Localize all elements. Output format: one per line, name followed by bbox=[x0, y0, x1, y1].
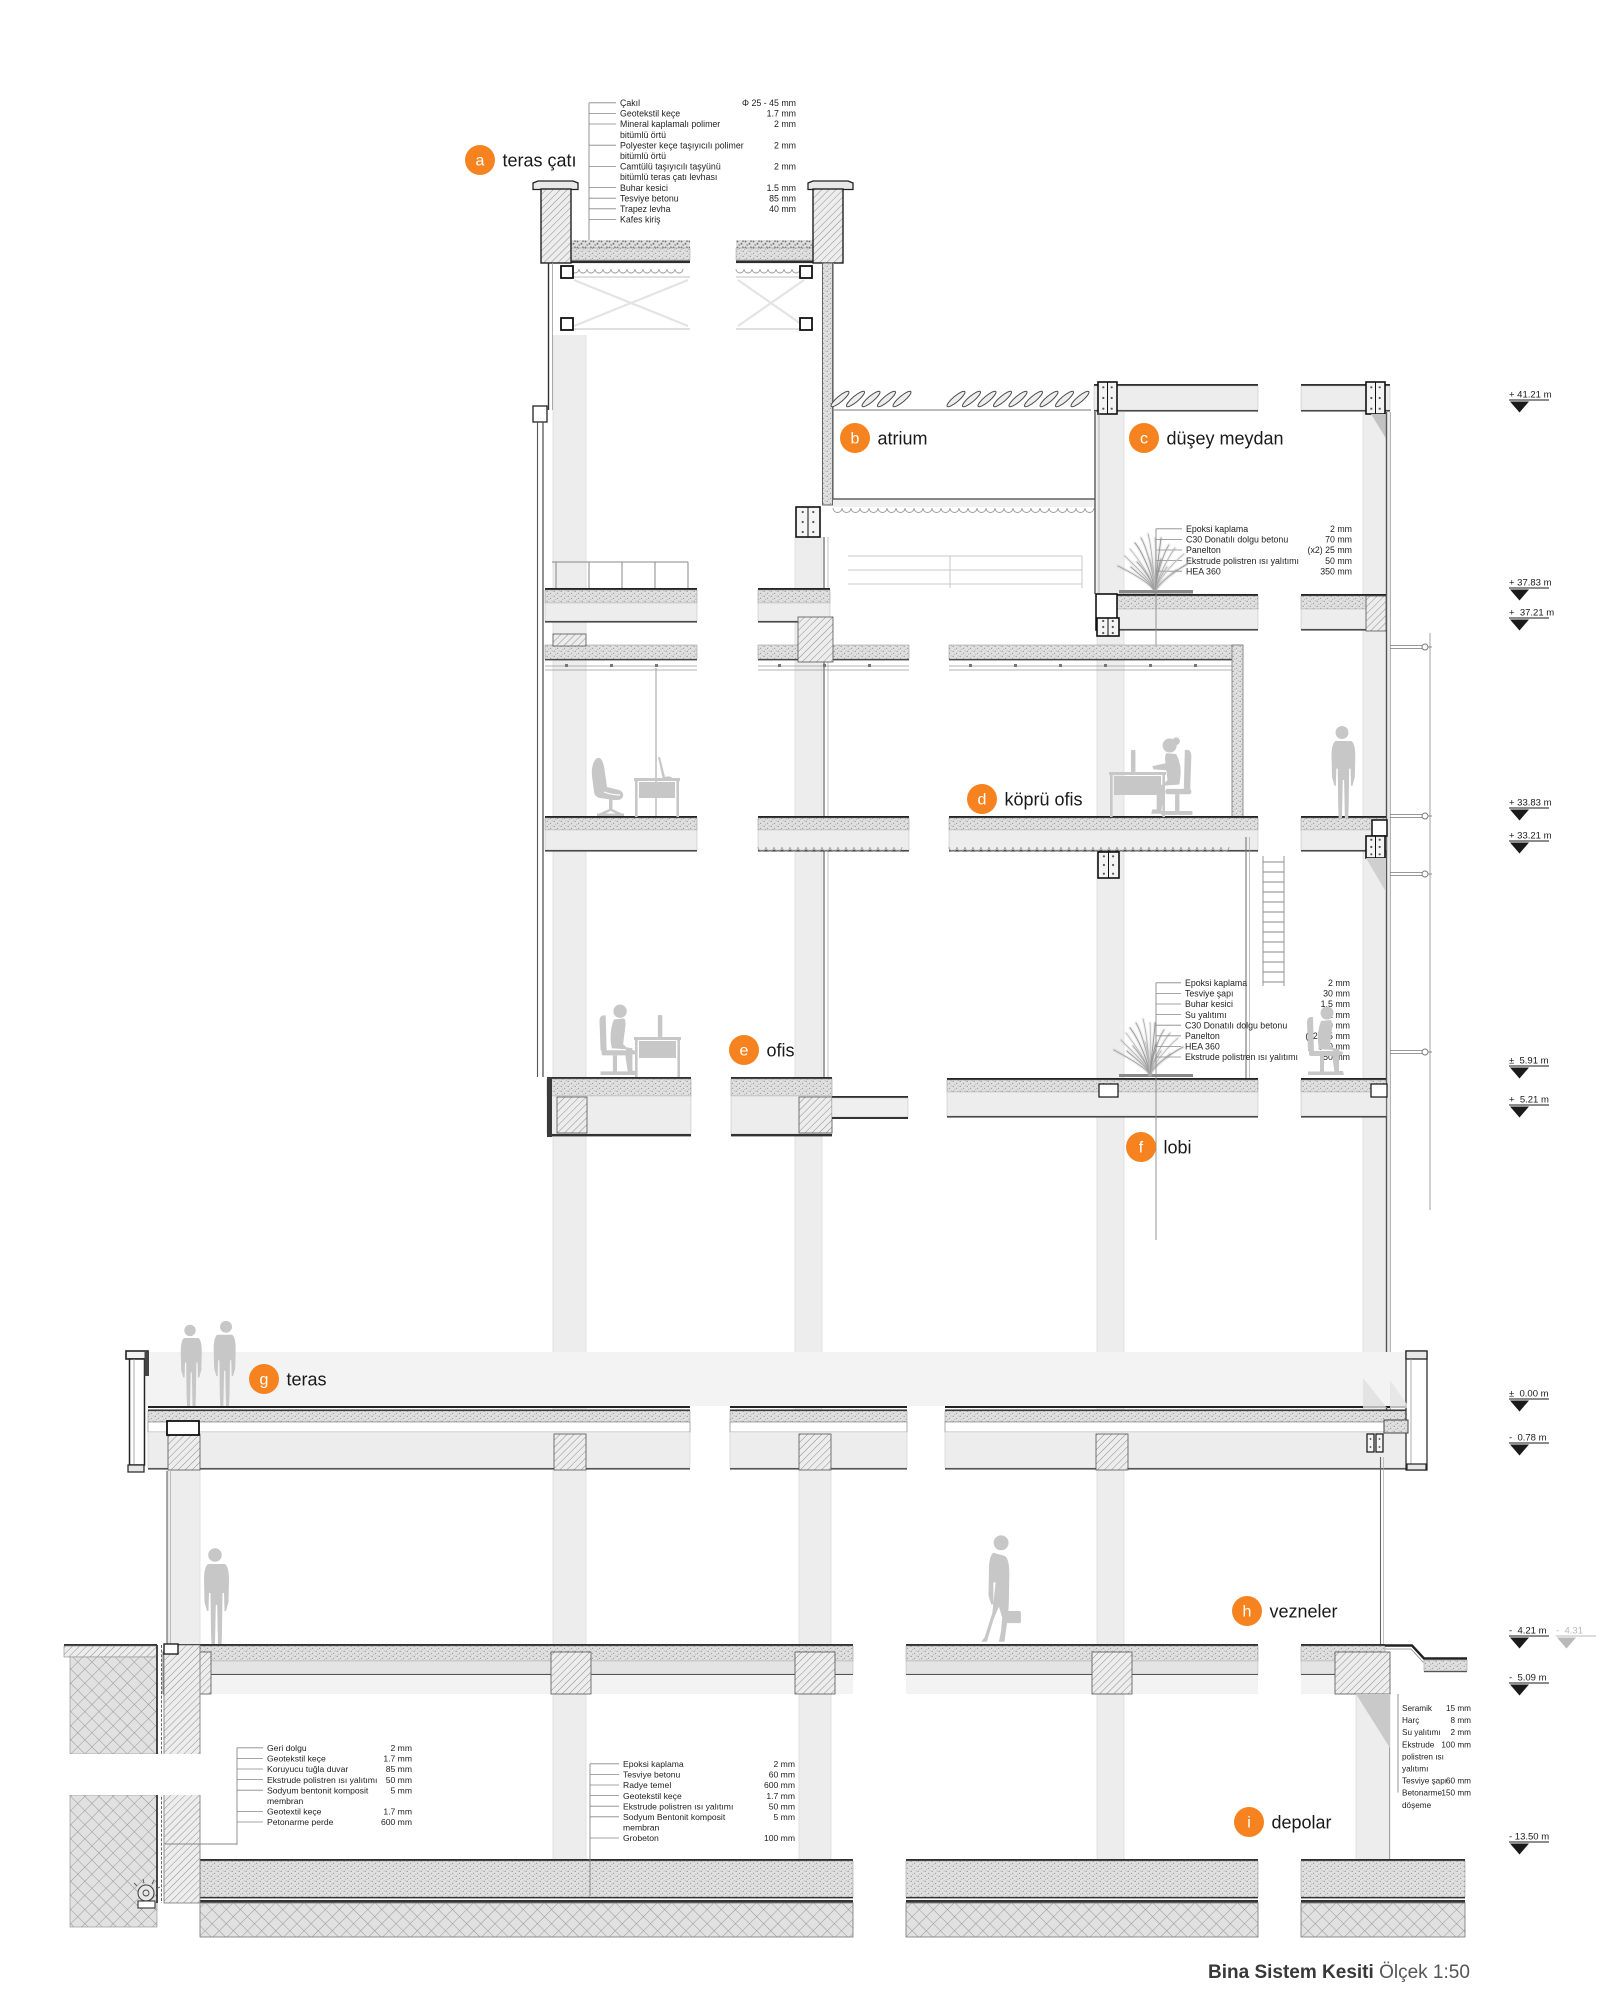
svg-text:f: f bbox=[1139, 1140, 1144, 1157]
svg-text:1.7 mm: 1.7 mm bbox=[383, 1807, 412, 1817]
svg-text:8 mm: 8 mm bbox=[1451, 1716, 1472, 1725]
svg-text:Geotextil keçe: Geotextil keçe bbox=[267, 1807, 322, 1817]
svg-text:Sodyum bentonit komposit: Sodyum bentonit komposit bbox=[267, 1785, 369, 1795]
svg-text:+ 33.21 m: + 33.21 m bbox=[1509, 831, 1552, 842]
svg-text:30 mm: 30 mm bbox=[1323, 989, 1350, 999]
svg-text:köprü ofis: köprü ofis bbox=[1005, 790, 1083, 810]
svg-text:2 mm: 2 mm bbox=[391, 1743, 412, 1753]
svg-text:teras: teras bbox=[287, 1370, 327, 1390]
svg-text:Geotekstil keçe: Geotekstil keçe bbox=[267, 1754, 326, 1764]
svg-text:5 mm: 5 mm bbox=[391, 1785, 412, 1795]
svg-text:15 mm: 15 mm bbox=[1446, 1704, 1471, 1713]
svg-text:C30 Donatılı dolgu betonu: C30 Donatılı dolgu betonu bbox=[1185, 1020, 1287, 1030]
svg-text:g: g bbox=[260, 1372, 269, 1389]
svg-text:Sodyum Bentonit komposit: Sodyum Bentonit komposit bbox=[623, 1812, 726, 1822]
svg-text:bitümlü örtü: bitümlü örtü bbox=[620, 151, 666, 161]
svg-text:± 5.91 m: ± 5.91 m bbox=[1509, 1056, 1549, 1067]
svg-text:150 mm: 150 mm bbox=[1441, 1789, 1471, 1798]
svg-text:Trapez levha: Trapez levha bbox=[620, 204, 671, 214]
svg-text:85 mm: 85 mm bbox=[386, 1764, 412, 1774]
svg-text:bitümlü örtü: bitümlü örtü bbox=[620, 130, 666, 140]
svg-text:+ 37.83 m: + 37.83 m bbox=[1509, 578, 1552, 589]
svg-text:- 4.21 m: - 4.21 m bbox=[1509, 1626, 1547, 1637]
svg-text:vezneler: vezneler bbox=[1270, 1602, 1338, 1622]
svg-text:- 0.78 m: - 0.78 m bbox=[1509, 1433, 1547, 1444]
svg-text:teras çatı: teras çatı bbox=[503, 151, 577, 171]
svg-text:Seramik: Seramik bbox=[1402, 1704, 1433, 1713]
svg-text:bitümlü teras çatı levhası: bitümlü teras çatı levhası bbox=[620, 172, 717, 182]
svg-text:1.7 mm: 1.7 mm bbox=[383, 1754, 412, 1764]
svg-text:Koruyucu tuğla duvar: Koruyucu tuğla duvar bbox=[267, 1764, 348, 1774]
svg-text:Geotekstil keçe: Geotekstil keçe bbox=[620, 109, 680, 119]
svg-text:ofis: ofis bbox=[767, 1041, 795, 1061]
svg-text:polistren ısı: polistren ısı bbox=[1402, 1752, 1444, 1761]
svg-text:Buhar kesici: Buhar kesici bbox=[620, 183, 668, 193]
svg-text:+ 33.83 m: + 33.83 m bbox=[1509, 798, 1552, 809]
svg-text:Çakıl: Çakıl bbox=[620, 98, 640, 108]
svg-text:1.7 mm: 1.7 mm bbox=[766, 1791, 795, 1801]
svg-text:membran: membran bbox=[623, 1823, 660, 1833]
svg-text:Kafes kiriş: Kafes kiriş bbox=[620, 215, 661, 225]
svg-text:a: a bbox=[476, 153, 485, 170]
svg-text:Tesviye betonu: Tesviye betonu bbox=[620, 193, 679, 203]
svg-text:Buhar kesici: Buhar kesici bbox=[1185, 999, 1233, 1009]
svg-text:60 mm: 60 mm bbox=[769, 1770, 795, 1780]
svg-text:Panelton: Panelton bbox=[1185, 1031, 1220, 1041]
svg-text:2 mm: 2 mm bbox=[774, 162, 796, 172]
svg-text:Epoksi kaplama: Epoksi kaplama bbox=[623, 1759, 684, 1769]
svg-text:2 mm: 2 mm bbox=[774, 140, 796, 150]
svg-text:Polyester keçe taşıyıcılı poli: Polyester keçe taşıyıcılı polimer bbox=[620, 140, 744, 150]
svg-text:- 4.31: - 4.31 bbox=[1556, 1626, 1583, 1637]
svg-text:Mineral kaplamalı polimer: Mineral kaplamalı polimer bbox=[620, 119, 720, 129]
svg-text:100 mm: 100 mm bbox=[764, 1833, 795, 1843]
svg-text:Tesviye şapı: Tesviye şapı bbox=[1402, 1777, 1447, 1786]
svg-text:Ekstrude polistren ısı yalıtım: Ekstrude polistren ısı yalıtımı bbox=[1186, 556, 1299, 566]
svg-text:Ekstrude polistren ısı yalıtım: Ekstrude polistren ısı yalıtımı bbox=[1185, 1052, 1298, 1062]
svg-text:1.5 mm: 1.5 mm bbox=[767, 183, 796, 193]
svg-text:2 mm: 2 mm bbox=[774, 119, 796, 129]
svg-text:Bina Sistem Kesiti Ölçek 1:50: Bina Sistem Kesiti Ölçek 1:50 bbox=[1208, 1962, 1470, 1983]
svg-text:HEA 360: HEA 360 bbox=[1186, 566, 1221, 576]
svg-text:50 mm: 50 mm bbox=[386, 1775, 412, 1785]
svg-text:Geri dolgu: Geri dolgu bbox=[267, 1743, 307, 1753]
svg-text:2 mm: 2 mm bbox=[774, 1759, 795, 1769]
svg-text:Grobeton: Grobeton bbox=[623, 1833, 659, 1843]
svg-text:c: c bbox=[1140, 431, 1148, 448]
svg-text:atrium: atrium bbox=[878, 429, 928, 449]
svg-text:Ekstrude polistren ısı yalıtım: Ekstrude polistren ısı yalıtımı bbox=[623, 1801, 733, 1811]
svg-text:depolar: depolar bbox=[1272, 1813, 1332, 1833]
svg-text:Camtülü taşıyıcılı taşyünü: Camtülü taşıyıcılı taşyünü bbox=[620, 162, 721, 172]
svg-text:Betonarme: Betonarme bbox=[1402, 1789, 1442, 1798]
svg-text:5 mm: 5 mm bbox=[774, 1812, 795, 1822]
svg-text:70 mm: 70 mm bbox=[1325, 535, 1352, 545]
svg-text:85 mm: 85 mm bbox=[769, 193, 796, 203]
svg-text:50 mm: 50 mm bbox=[769, 1801, 795, 1811]
svg-text:(x2) 25 mm: (x2) 25 mm bbox=[1308, 545, 1352, 555]
svg-text:düşey meydan: düşey meydan bbox=[1167, 429, 1284, 449]
svg-text:40 mm: 40 mm bbox=[769, 204, 796, 214]
svg-text:Su yalıtımı: Su yalıtımı bbox=[1402, 1728, 1441, 1737]
svg-text:Su yalıtımı: Su yalıtımı bbox=[1185, 1010, 1227, 1020]
svg-text:C30 Donatılı dolgu betonu: C30 Donatılı dolgu betonu bbox=[1186, 535, 1288, 545]
svg-text:Petonarme perde: Petonarme perde bbox=[267, 1817, 334, 1827]
svg-text:i: i bbox=[1247, 1815, 1251, 1832]
svg-text:d: d bbox=[978, 792, 987, 809]
svg-text:+ 37.21 m: + 37.21 m bbox=[1509, 608, 1554, 619]
svg-text:2 mm: 2 mm bbox=[1328, 978, 1350, 988]
svg-text:Geotekstil keçe: Geotekstil keçe bbox=[623, 1791, 682, 1801]
svg-text:+ 41.21 m: + 41.21 m bbox=[1509, 390, 1552, 401]
svg-text:600 mm: 600 mm bbox=[381, 1817, 412, 1827]
svg-text:Epoksi kaplama: Epoksi kaplama bbox=[1186, 524, 1248, 534]
svg-text:100 mm: 100 mm bbox=[1441, 1740, 1471, 1749]
svg-text:HEA 360: HEA 360 bbox=[1185, 1042, 1220, 1052]
svg-text:± 0.00 m: ± 0.00 m bbox=[1509, 1389, 1549, 1400]
svg-text:Epoksi kaplama: Epoksi kaplama bbox=[1185, 978, 1247, 988]
svg-text:e: e bbox=[740, 1043, 749, 1060]
svg-text:350 mm: 350 mm bbox=[1320, 566, 1352, 576]
svg-text:h: h bbox=[1243, 1604, 1252, 1621]
svg-text:döşeme: döşeme bbox=[1402, 1801, 1432, 1810]
svg-text:Harç: Harç bbox=[1402, 1716, 1419, 1725]
svg-text:- 5.09 m: - 5.09 m bbox=[1509, 1673, 1547, 1684]
svg-text:2 mm: 2 mm bbox=[1330, 524, 1352, 534]
svg-text:Panelton: Panelton bbox=[1186, 545, 1221, 555]
svg-text:60 mm: 60 mm bbox=[1446, 1777, 1471, 1786]
svg-text:Tesviye betonu: Tesviye betonu bbox=[623, 1770, 681, 1780]
svg-text:1.7 mm: 1.7 mm bbox=[767, 109, 796, 119]
svg-text:Ekstrude: Ekstrude bbox=[1402, 1740, 1435, 1749]
svg-text:Φ 25 - 45 mm: Φ 25 - 45 mm bbox=[742, 98, 796, 108]
svg-text:50 mm: 50 mm bbox=[1325, 556, 1352, 566]
svg-text:+ 5.21 m: + 5.21 m bbox=[1509, 1095, 1549, 1106]
svg-text:yalıtımı: yalıtımı bbox=[1402, 1765, 1428, 1774]
svg-text:Ekstrude polistren ısı yalıtım: Ekstrude polistren ısı yalıtımı bbox=[267, 1775, 377, 1785]
svg-text:lobi: lobi bbox=[1164, 1138, 1192, 1158]
svg-text:Tesviye şapı: Tesviye şapı bbox=[1185, 989, 1233, 999]
svg-text:- 13.50 m: - 13.50 m bbox=[1509, 1832, 1549, 1843]
svg-text:600 mm: 600 mm bbox=[764, 1780, 795, 1790]
svg-text:Radye temel: Radye temel bbox=[623, 1780, 671, 1790]
svg-text:2 mm: 2 mm bbox=[1451, 1728, 1472, 1737]
svg-text:b: b bbox=[851, 431, 860, 448]
svg-text:membran: membran bbox=[267, 1796, 304, 1806]
